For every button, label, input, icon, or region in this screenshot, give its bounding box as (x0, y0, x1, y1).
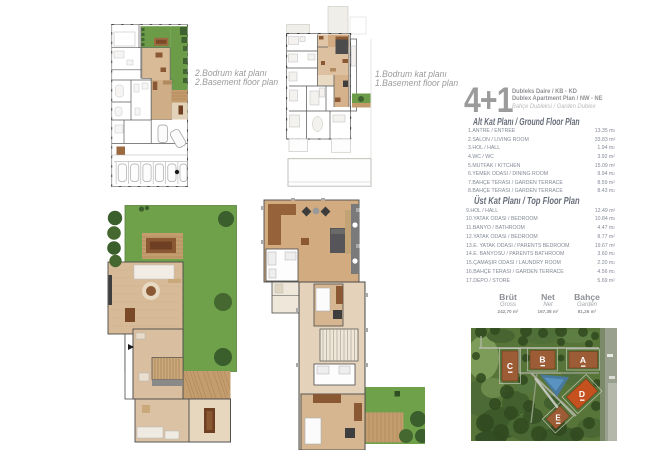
svg-text:E: E (555, 414, 561, 423)
svg-text:C: C (507, 361, 513, 371)
svg-text:B: B (539, 355, 545, 365)
svg-text:A: A (580, 355, 586, 365)
svg-text:D: D (579, 389, 585, 399)
